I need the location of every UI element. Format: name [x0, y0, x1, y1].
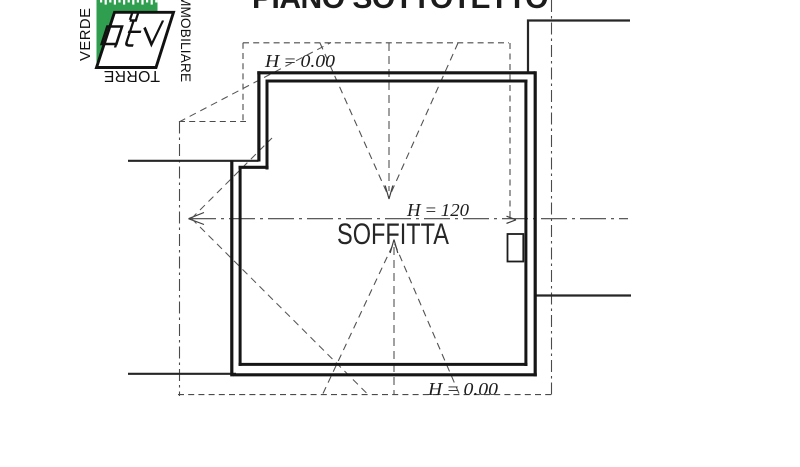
svg-text:H = 0.00: H = 0.00 — [264, 51, 335, 71]
svg-text:H = 120: H = 120 — [406, 200, 469, 220]
svg-text:H = 0.00: H = 0.00 — [427, 379, 498, 399]
svg-text:SOFFITTA: SOFFITTA — [337, 218, 449, 251]
